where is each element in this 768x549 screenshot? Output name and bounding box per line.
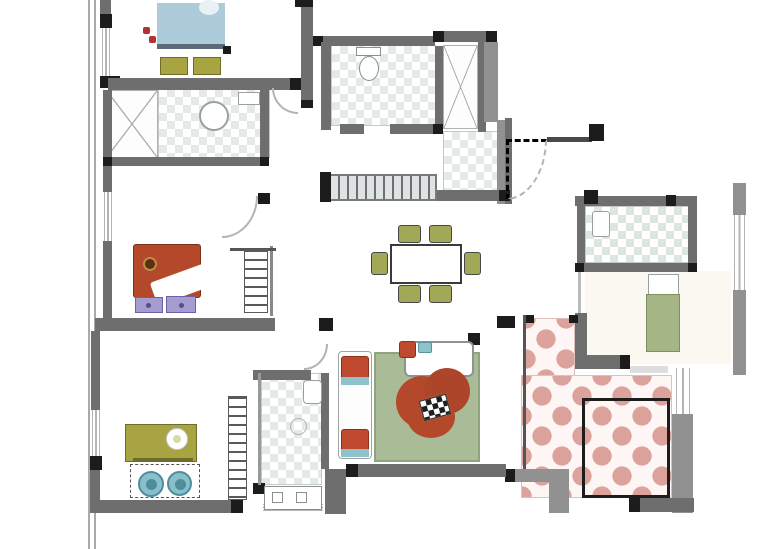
window-bedroom3 xyxy=(92,410,100,456)
sink-bath1 xyxy=(238,92,260,105)
decor-red-dot-2 xyxy=(149,36,156,43)
cap-bed-blue-corner xyxy=(223,46,231,54)
bed-olive-flower-center xyxy=(173,435,181,443)
cushion-dot-2 xyxy=(179,303,184,308)
terrace-floor-upper xyxy=(525,318,575,378)
cap-living-bottom xyxy=(346,464,358,477)
wall-left-bed3a xyxy=(91,331,100,410)
bench-olive-2 xyxy=(193,57,221,75)
terrace-edge-line xyxy=(523,315,526,473)
bed-blue-sheet-fold xyxy=(199,0,219,15)
cap-right-top-b xyxy=(666,195,676,206)
wall-terrace-sw-b xyxy=(549,482,569,513)
window-bedroom4 xyxy=(734,215,745,290)
cap-terrace-ne xyxy=(569,315,578,323)
terrace-inner-rect xyxy=(582,398,670,498)
bed-blue-foot-line xyxy=(157,44,225,49)
cap-right-top-a xyxy=(584,190,598,204)
cap-closet2-top-a xyxy=(433,31,444,42)
line-bed2-right xyxy=(270,246,273,316)
ladder-shelf-bedroom3 xyxy=(228,396,247,500)
wall-bath4-right xyxy=(688,199,697,269)
wall-outer-ne xyxy=(484,42,498,122)
toilet-bath4 xyxy=(592,211,610,237)
wall-bed2-bed3 xyxy=(95,318,275,331)
wall-block-bath3 xyxy=(325,469,346,514)
faucet-bath3-1 xyxy=(272,492,283,503)
cap-center-top-b xyxy=(301,100,313,108)
stool-teal-1-inner xyxy=(146,479,157,490)
bath1-shower-floor xyxy=(106,90,158,158)
toilet-bath1 xyxy=(199,101,229,131)
cap-left-top xyxy=(100,14,112,28)
wall-bed3-bottom xyxy=(90,500,243,513)
wall-bath1-left xyxy=(103,90,112,157)
cap-bath2-bottom xyxy=(433,124,443,134)
armchair-teal-strip-2 xyxy=(341,449,369,457)
wall-bath4-bottom xyxy=(575,263,697,272)
wall-entry-top xyxy=(547,137,592,142)
door-bath3-arc xyxy=(304,344,328,370)
dining-chair-bottom-2 xyxy=(429,285,452,303)
dining-chair-right xyxy=(464,252,481,275)
line-bath3-left xyxy=(258,373,261,485)
bed-single-pillow xyxy=(648,274,679,295)
window-terrace-right xyxy=(676,368,690,414)
terrace-threshold xyxy=(630,366,668,373)
cap-closet2-top-b xyxy=(486,31,497,42)
cap-left-bed3 xyxy=(90,456,102,470)
window-bedroom2 xyxy=(104,192,112,241)
wall-bath3-top xyxy=(253,370,311,380)
cap-bath4-se xyxy=(688,263,697,272)
wall-bath1-bottom xyxy=(103,157,269,166)
cap-terrace-sw xyxy=(505,469,515,482)
bed-single-green xyxy=(646,294,680,352)
bath2b-floor xyxy=(443,131,500,192)
dining-chair-top-2 xyxy=(429,225,452,243)
bed-olive-foot-line xyxy=(133,458,193,462)
bed-red-button xyxy=(143,257,157,271)
door-bedroom2-arc xyxy=(222,196,258,238)
wall-left-bed2a xyxy=(103,166,112,192)
cushion-dot-1 xyxy=(146,303,151,308)
wall-bath4-left xyxy=(577,206,585,264)
wall-bath2-bottom-a xyxy=(340,124,364,134)
wall-left-bed2b xyxy=(103,241,112,318)
bath2-floor xyxy=(331,45,436,126)
wall-outer-right-1 xyxy=(733,183,746,215)
window-bedroom1 xyxy=(102,28,110,77)
wall-outer-right-2 xyxy=(733,290,746,375)
door-entry-arc xyxy=(506,139,547,200)
shelf-bedroom2 xyxy=(244,249,268,313)
stool-teal-2-inner xyxy=(175,479,186,490)
toilet-bath3 xyxy=(303,380,322,404)
floor-plan xyxy=(0,0,768,549)
dining-chair-top-1 xyxy=(398,225,421,243)
wall-left-top xyxy=(100,0,111,15)
sofa-cushion-teal xyxy=(418,342,432,353)
dining-table xyxy=(390,244,462,284)
cap-bed4-bottom xyxy=(620,355,630,369)
sofa-cushion-red xyxy=(399,341,416,358)
faucet-bath3-2 xyxy=(296,492,307,503)
cap-stairs xyxy=(320,172,331,202)
dining-chair-left xyxy=(371,252,388,275)
stub-living-left xyxy=(319,318,333,331)
wall-bath3-right xyxy=(321,373,329,469)
wall-center-top xyxy=(301,0,313,108)
cap-bath1-se xyxy=(260,157,269,166)
cap-entry xyxy=(589,124,604,141)
door-bedroom1-arc xyxy=(272,88,298,114)
wall-living-bottom xyxy=(346,464,506,477)
armchair-teal-strip-1 xyxy=(341,377,369,385)
wall-bath1-right xyxy=(260,90,269,157)
wall-bath2-right xyxy=(435,46,443,130)
toilet-bath2-bowl xyxy=(359,56,379,81)
bench-olive-1 xyxy=(160,57,188,75)
cap-bath1-sw xyxy=(103,157,112,166)
stub-terrace-door xyxy=(497,316,515,328)
cap-bath4-sw xyxy=(575,263,584,272)
wall-bath2-left xyxy=(321,42,331,130)
toilet-bath2-tank xyxy=(356,47,381,56)
decor-red-dot-1 xyxy=(143,27,150,34)
cap-bed3-bottom xyxy=(231,500,243,513)
stub-bed2-door xyxy=(258,193,270,204)
shower-drain-bath3 xyxy=(290,418,307,435)
closet2-floor xyxy=(443,45,478,129)
dining-chair-bottom-1 xyxy=(398,285,421,303)
stairs-strip xyxy=(327,174,437,201)
cap-center-top-a xyxy=(295,0,313,7)
wall-bath2-top xyxy=(313,36,435,46)
cap-terrace-bottom xyxy=(629,498,640,512)
